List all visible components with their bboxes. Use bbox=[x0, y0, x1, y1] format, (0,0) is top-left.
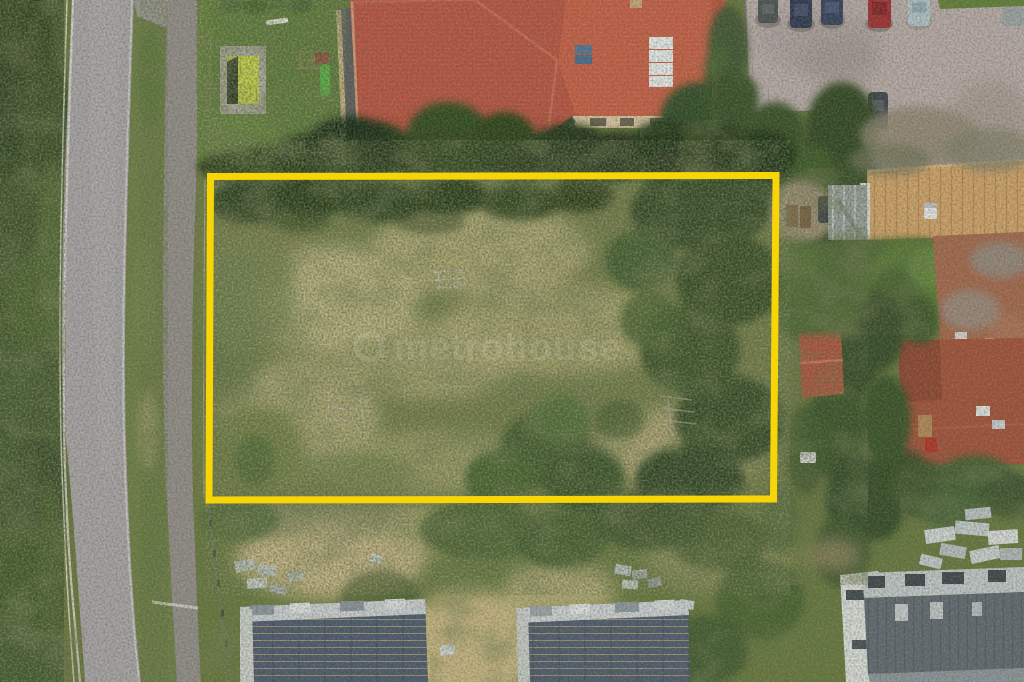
svg-text:metrohouse: metrohouse bbox=[394, 327, 621, 369]
